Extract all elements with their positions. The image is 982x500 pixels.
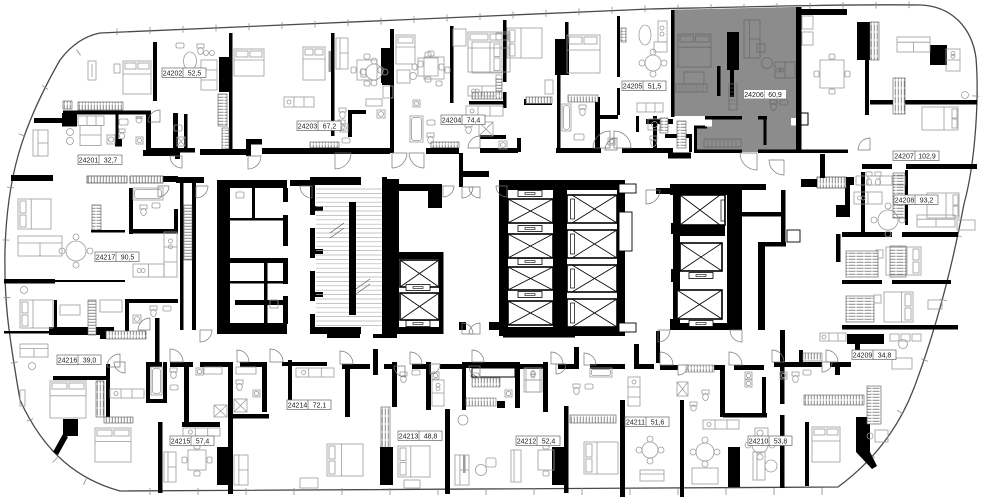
svg-text:24209: 24209 [853,353,873,360]
svg-text:24207: 24207 [894,154,914,161]
svg-text:24211: 24211 [626,420,645,427]
svg-text:53,8: 53,8 [774,439,788,446]
svg-text:52,4: 52,4 [542,439,556,446]
svg-text:51,6: 51,6 [651,420,665,427]
svg-text:24206: 24206 [744,92,764,99]
svg-text:52,5: 52,5 [188,71,202,78]
svg-text:90,5: 90,5 [121,255,135,262]
svg-text:24210: 24210 [749,439,769,446]
svg-text:24217: 24217 [96,255,116,262]
svg-text:60,9: 60,9 [768,92,782,99]
svg-text:24213: 24213 [399,434,419,441]
svg-text:24208: 24208 [895,198,915,205]
svg-text:57,4: 57,4 [196,439,210,446]
svg-text:48,8: 48,8 [424,434,438,441]
svg-text:24205: 24205 [623,84,643,91]
svg-text:67,2: 67,2 [323,124,337,131]
svg-text:24216: 24216 [58,358,78,365]
svg-text:51,5: 51,5 [648,84,662,91]
svg-text:24203: 24203 [298,124,318,131]
svg-text:74,4: 74,4 [467,118,481,125]
svg-text:24212: 24212 [517,439,537,446]
svg-text:39,0: 39,0 [83,358,97,365]
svg-text:102,9: 102,9 [918,154,936,161]
svg-text:72,1: 72,1 [313,403,327,410]
svg-text:34,8: 34,8 [878,353,892,360]
svg-text:24201: 24201 [79,158,99,165]
svg-text:24202: 24202 [163,71,183,78]
svg-text:93,2: 93,2 [920,198,934,205]
svg-text:24215: 24215 [171,439,191,446]
svg-text:24214: 24214 [288,403,308,410]
svg-text:24204: 24204 [442,118,462,125]
svg-text:32,7: 32,7 [104,158,118,165]
